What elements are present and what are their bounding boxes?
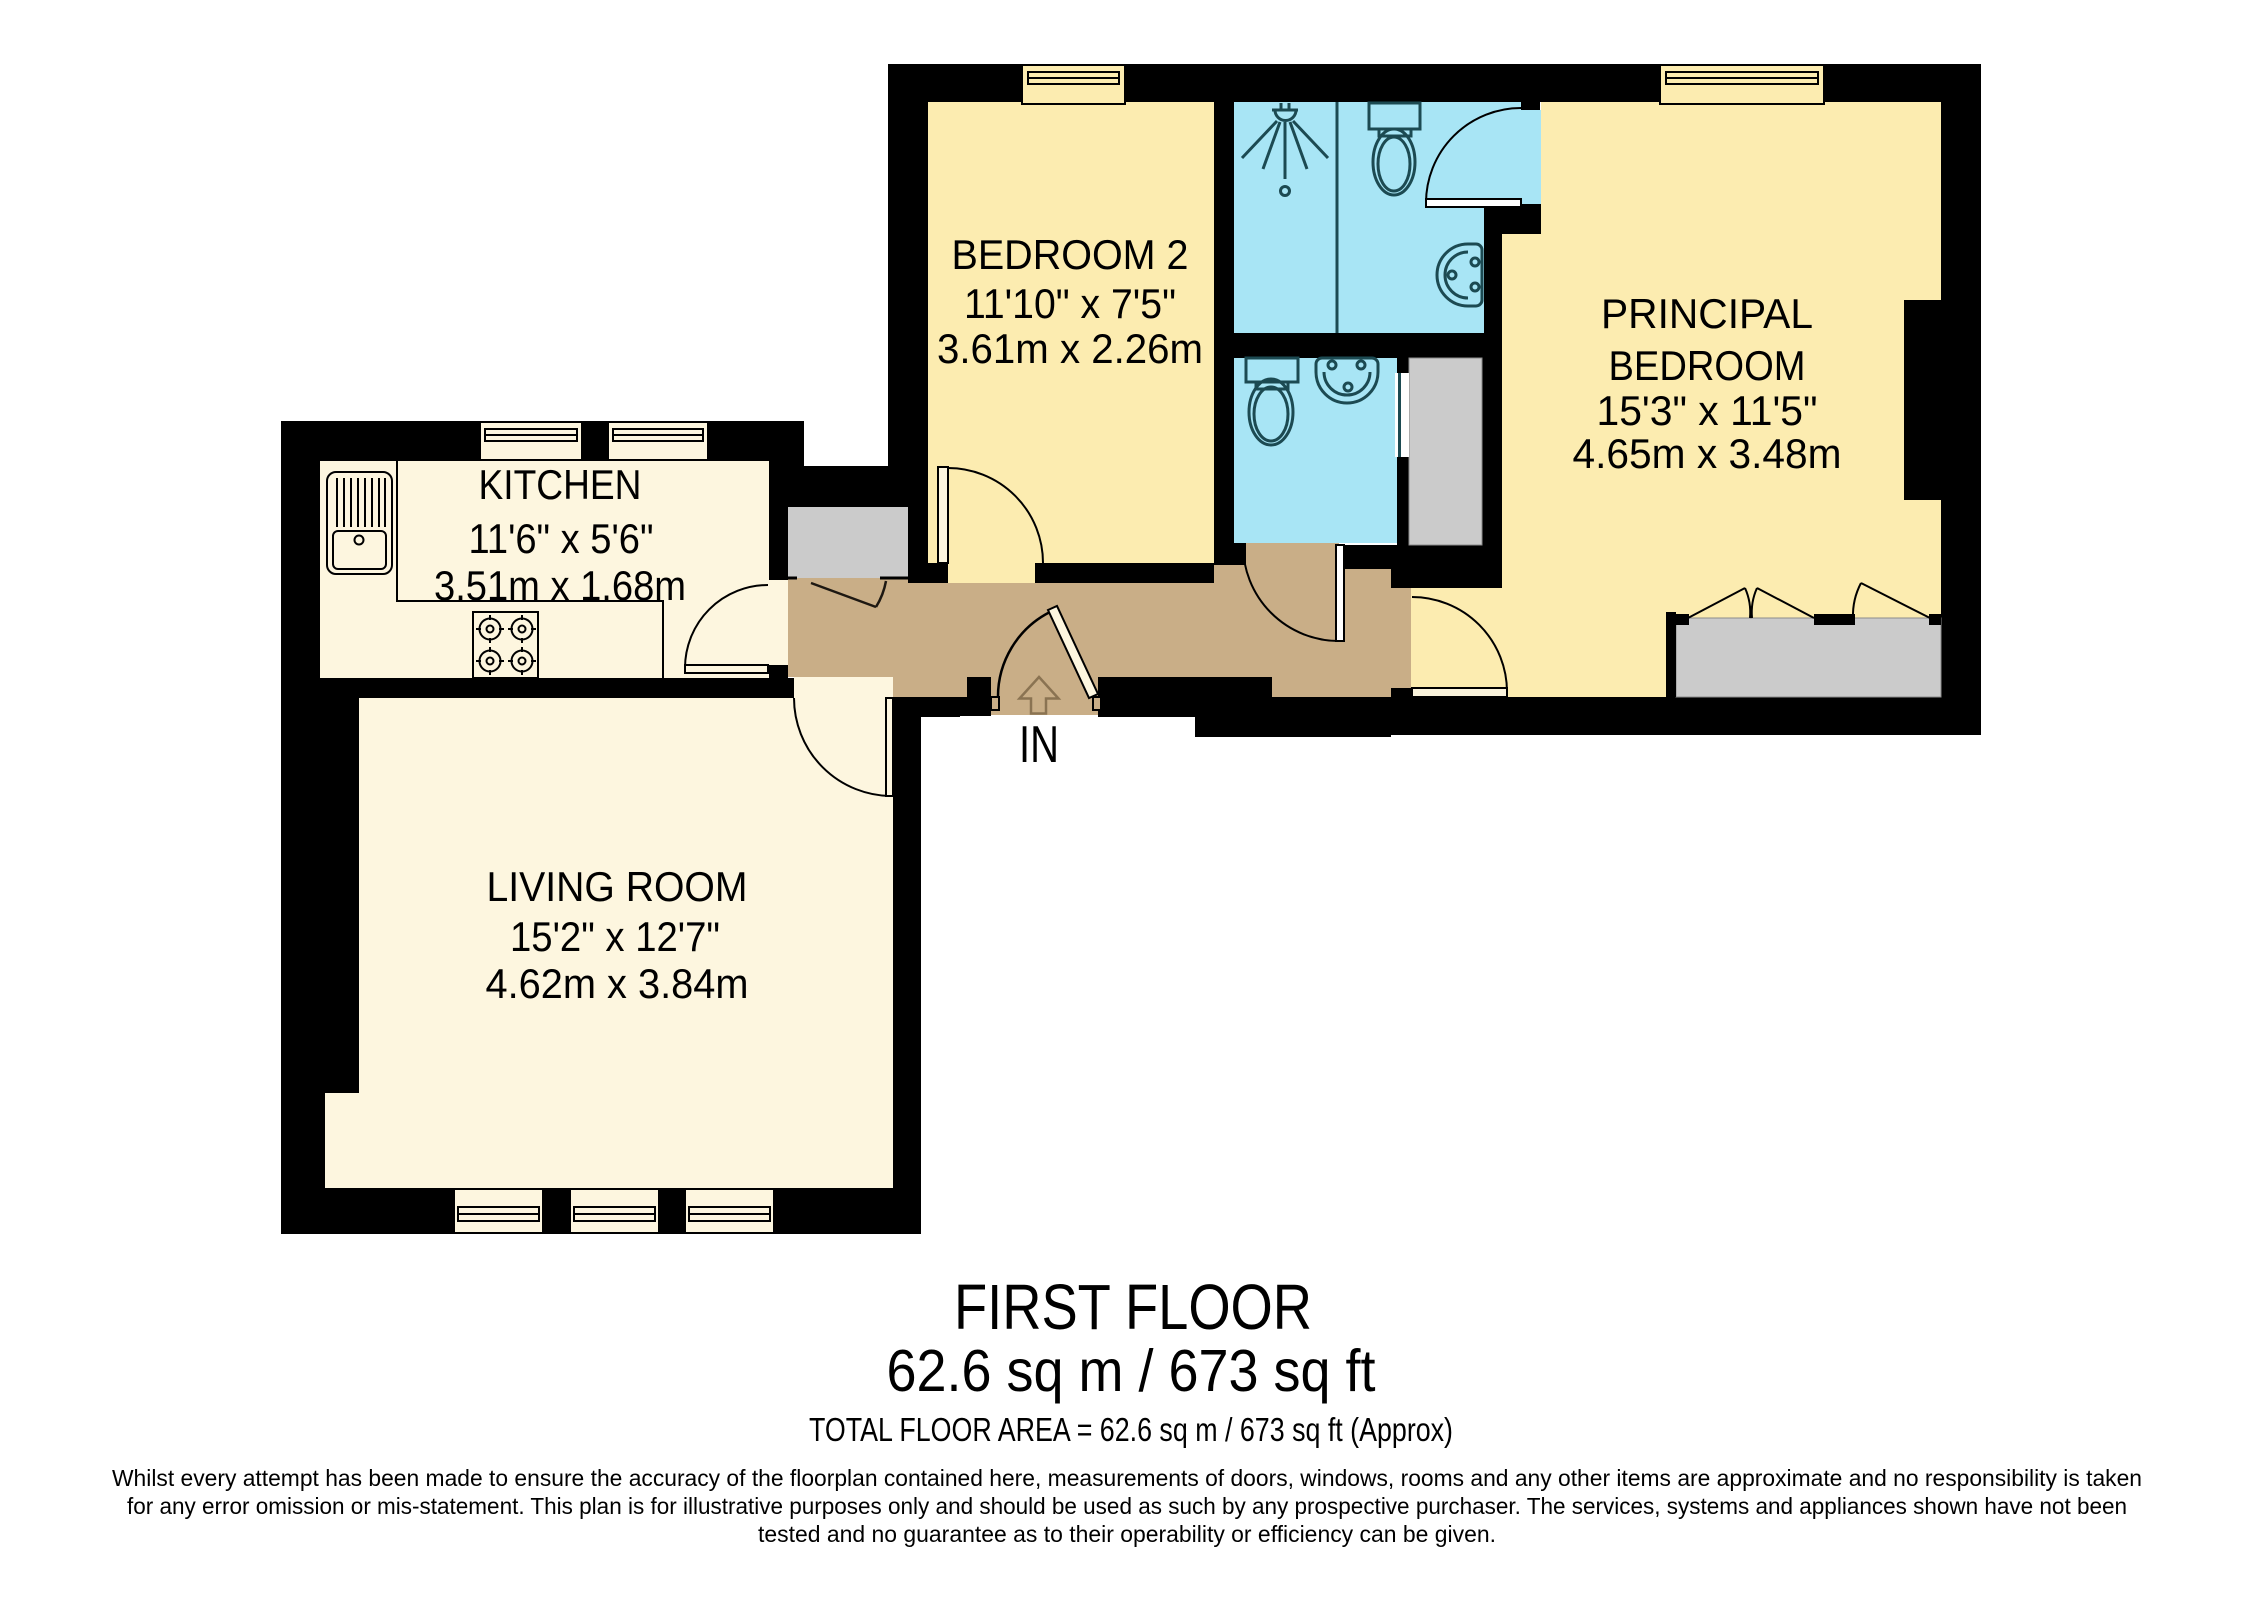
svg-text:LIVING ROOM: LIVING ROOM bbox=[487, 863, 748, 910]
svg-text:TOTAL FLOOR AREA = 62.6 sq m /: TOTAL FLOOR AREA = 62.6 sq m / 673 sq ft… bbox=[809, 1411, 1453, 1448]
svg-text:15'3" x 11'5": 15'3" x 11'5" bbox=[1597, 387, 1818, 434]
svg-text:11'10" x 7'5": 11'10" x 7'5" bbox=[964, 280, 1176, 327]
svg-text:IN: IN bbox=[1019, 716, 1059, 774]
svg-text:3.61m x 2.26m: 3.61m x 2.26m bbox=[937, 325, 1203, 372]
svg-text:BEDROOM: BEDROOM bbox=[1609, 342, 1806, 389]
svg-text:3.51m x 1.68m: 3.51m x 1.68m bbox=[434, 562, 686, 609]
svg-text:4.65m x 3.48m: 4.65m x 3.48m bbox=[1573, 430, 1842, 477]
svg-text:4.62m x 3.84m: 4.62m x 3.84m bbox=[486, 960, 749, 1007]
svg-text:15'2" x 12'7": 15'2" x 12'7" bbox=[510, 913, 720, 960]
svg-text:tested and no guarantee as to: tested and no guarantee as to their oper… bbox=[758, 1521, 1496, 1547]
svg-text:KITCHEN: KITCHEN bbox=[479, 461, 642, 508]
svg-text:BEDROOM 2: BEDROOM 2 bbox=[952, 231, 1189, 278]
svg-text:for any error omission or mis-: for any error omission or mis-statement.… bbox=[127, 1493, 2127, 1519]
svg-text:Whilst every attempt has been: Whilst every attempt has been made to en… bbox=[112, 1465, 2142, 1491]
svg-text:11'6" x 5'6": 11'6" x 5'6" bbox=[469, 515, 654, 562]
svg-text:PRINCIPAL: PRINCIPAL bbox=[1601, 290, 1813, 337]
svg-text:FIRST FLOOR: FIRST FLOOR bbox=[954, 1271, 1312, 1343]
svg-text:62.6 sq m / 673 sq ft: 62.6 sq m / 673 sq ft bbox=[887, 1338, 1376, 1404]
